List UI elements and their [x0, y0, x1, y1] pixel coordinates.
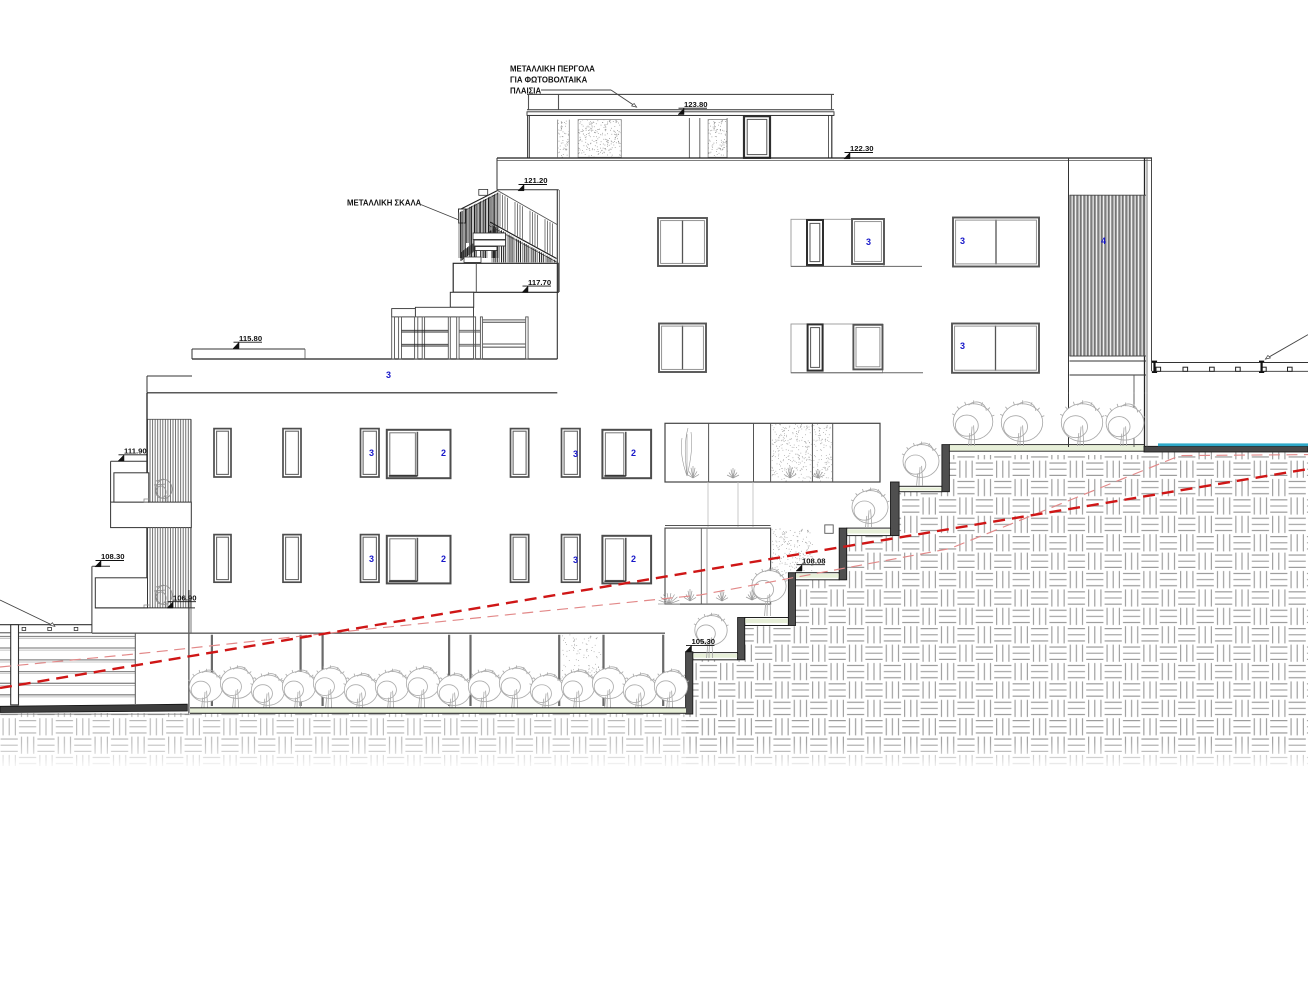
svg-text:122.30: 122.30: [850, 144, 874, 153]
svg-text:111.90: 111.90: [124, 447, 147, 456]
svg-text:ΜΕΤΑΛΛΙΚΗ ΠΕΡΓΟΛΑ: ΜΕΤΑΛΛΙΚΗ ΠΕΡΓΟΛΑ: [510, 65, 595, 74]
svg-text:3: 3: [573, 449, 578, 459]
svg-text:3: 3: [369, 554, 374, 564]
svg-text:105.30: 105.30: [692, 637, 716, 646]
svg-text:3: 3: [960, 341, 965, 351]
svg-text:121.20: 121.20: [524, 176, 548, 185]
svg-text:3: 3: [960, 236, 965, 246]
svg-text:ΓΙΑ ΦΩΤΟΒΟΛΤΑΙΚΑ: ΓΙΑ ΦΩΤΟΒΟΛΤΑΙΚΑ: [510, 76, 588, 85]
svg-text:2: 2: [441, 448, 446, 458]
svg-text:3: 3: [866, 237, 871, 247]
svg-text:117.70: 117.70: [528, 278, 551, 287]
svg-text:4: 4: [1101, 236, 1106, 246]
svg-text:123.80: 123.80: [684, 100, 708, 109]
svg-text:3: 3: [369, 448, 374, 458]
svg-text:108.08: 108.08: [802, 556, 826, 565]
svg-text:2: 2: [631, 448, 636, 458]
svg-text:3: 3: [573, 555, 578, 565]
svg-text:ΜΕΤΑΛΛΙΚΗ ΣΚΑΛΑ: ΜΕΤΑΛΛΙΚΗ ΣΚΑΛΑ: [347, 199, 422, 208]
svg-text:115.80: 115.80: [239, 334, 262, 343]
svg-text:ΠΛΑΙΣΙΑ: ΠΛΑΙΣΙΑ: [510, 87, 541, 96]
svg-text:2: 2: [441, 554, 446, 564]
svg-text:106.90: 106.90: [173, 593, 197, 602]
svg-text:108.30: 108.30: [101, 552, 125, 561]
svg-text:2: 2: [631, 554, 636, 564]
svg-text:3: 3: [386, 370, 391, 380]
